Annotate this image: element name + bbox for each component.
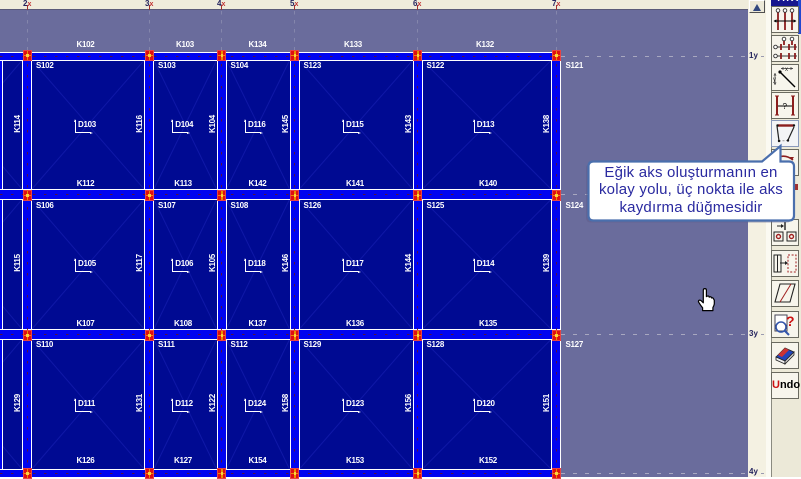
svg-text:?: ? bbox=[783, 102, 788, 111]
svg-text:?: ? bbox=[786, 313, 795, 329]
svg-text:y: y bbox=[773, 77, 776, 83]
svg-text:x: x bbox=[785, 67, 788, 73]
